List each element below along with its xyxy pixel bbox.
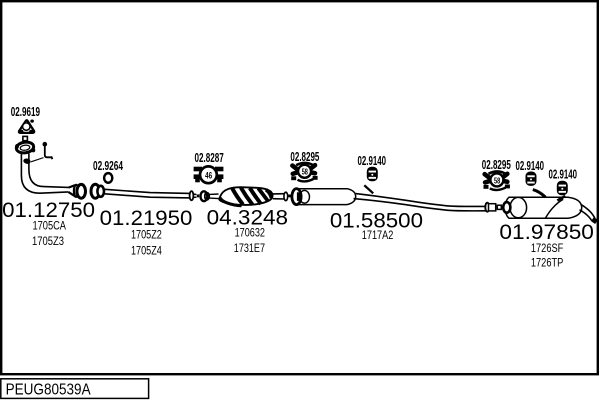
svg-text:02.9619: 02.9619 (11, 104, 40, 119)
svg-text:02.9140: 02.9140 (358, 153, 387, 168)
svg-text:1705CA: 1705CA (33, 219, 67, 233)
svg-text:1717A2: 1717A2 (362, 228, 394, 242)
svg-text:58: 58 (302, 167, 308, 177)
svg-text:02.9140: 02.9140 (549, 167, 578, 182)
svg-text:46: 46 (205, 171, 212, 181)
svg-text:02.8287: 02.8287 (195, 150, 224, 165)
svg-text:01.21950: 01.21950 (100, 206, 193, 230)
svg-text:1705Z2: 1705Z2 (131, 228, 162, 242)
svg-text:PEUG80539A: PEUG80539A (6, 382, 92, 399)
svg-text:170632: 170632 (235, 225, 265, 239)
svg-text:1731E7: 1731E7 (234, 241, 265, 255)
svg-text:1705Z3: 1705Z3 (32, 234, 64, 248)
svg-text:1726SF: 1726SF (531, 241, 563, 255)
svg-text:1726TP: 1726TP (531, 256, 563, 270)
svg-text:02.8295: 02.8295 (482, 157, 511, 172)
svg-text:02.9140: 02.9140 (516, 158, 545, 173)
svg-text:02.9264: 02.9264 (93, 158, 123, 173)
svg-text:1705Z4: 1705Z4 (131, 243, 162, 257)
